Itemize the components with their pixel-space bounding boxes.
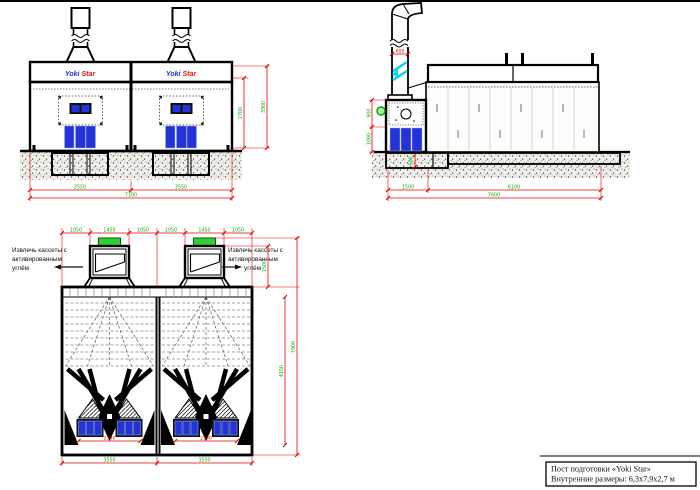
fan-door [390,128,400,151]
svg-text:7600: 7600 [488,193,500,199]
side-view: 500 [367,3,631,201]
svg-text:1500: 1500 [402,185,414,191]
exhaust-funnel-right [179,238,230,287]
svg-text:3550: 3550 [175,185,187,191]
airflow-marks [392,62,407,80]
roof-band [428,53,598,82]
svg-text:600: 600 [396,49,405,55]
band-ticks [70,288,246,296]
svg-text:500: 500 [409,156,415,165]
hall-divider [159,297,161,455]
drawing-sheet: Yoki Star [0,0,700,490]
svg-text:900: 900 [367,108,373,117]
svg-text:1000: 1000 [367,133,373,145]
front-height-dimensions: 2700 3300 [232,64,270,150]
svg-text:активированным: активированным [228,256,278,263]
hall-divider [156,297,158,455]
svg-text:2700: 2700 [238,107,244,119]
hall-half-right [161,297,251,445]
svg-text:Извлечь кассеты с: Извлечь кассеты с [12,247,68,254]
fan-unit [377,100,426,152]
hall-half-left [65,297,155,445]
side-height-dimensions: 900 1000 [367,98,387,154]
title-block: Пост подготовки «Yoki Star» Внутренние р… [540,456,700,486]
booth-module-left [33,8,129,151]
svg-text:3550: 3550 [103,458,115,464]
exhaust-duct: 600 [388,3,428,100]
valve-handle [377,107,385,115]
title-line-1: Пост подготовки «Yoki Star» [551,465,651,474]
svg-text:1050: 1050 [232,228,244,234]
svg-text:активированным: активированным [12,256,62,263]
svg-text:6100: 6100 [508,185,520,191]
extract-label-left: Извлечь кассеты с активированным углём [12,247,83,272]
plan-bottom-dimensions: 3550 3550 [60,457,254,466]
svg-text:1450: 1450 [198,228,210,234]
fan-door [412,128,422,151]
exhaust-funnel-left [84,238,135,287]
extract-label-right: Извлечь кассеты с активированным углём [222,247,284,272]
svg-text:4150: 4150 [279,365,285,377]
front-view: 2700 3300 3550 3550 7100 [20,8,270,201]
svg-text:1450: 1450 [103,228,115,234]
booth-module-right [134,8,230,151]
svg-text:1050: 1050 [70,228,82,234]
svg-text:углём: углём [12,265,29,272]
title-line-2: Внутренние размеры: 6,3x7,9x2,7 м [551,475,675,484]
svg-text:углём: углём [244,265,261,272]
svg-text:1050: 1050 [165,228,177,234]
svg-text:1500: 1500 [262,260,268,272]
svg-text:7900: 7900 [291,341,297,353]
fan-door [401,128,411,151]
svg-text:3300: 3300 [261,101,267,113]
module-divider [130,62,133,151]
duct-width-dimension: 600 [390,49,410,57]
svg-text:3550: 3550 [198,458,210,464]
plan-view: 1050 1450 1050 1050 1450 1050 Извлечь ка… [12,228,300,467]
hall-wall [426,82,599,152]
svg-text:1050: 1050 [137,228,149,234]
svg-text:Извлечь кассеты с: Извлечь кассеты с [228,247,284,254]
svg-text:7100: 7100 [125,193,137,199]
svg-text:3550: 3550 [74,185,86,191]
